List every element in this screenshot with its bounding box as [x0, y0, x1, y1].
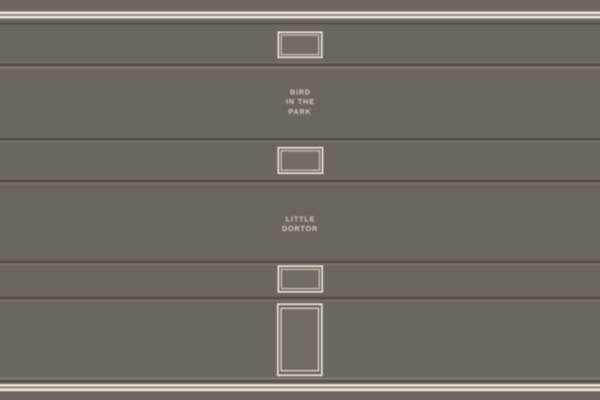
svg-text:LITTLE: LITTLE	[286, 216, 315, 224]
svg-text:PARK: PARK	[288, 108, 311, 116]
svg-text:BIRD: BIRD	[290, 89, 311, 97]
svg-text:DORTOR: DORTOR	[282, 225, 318, 233]
svg-text:IN THE: IN THE	[286, 98, 315, 106]
